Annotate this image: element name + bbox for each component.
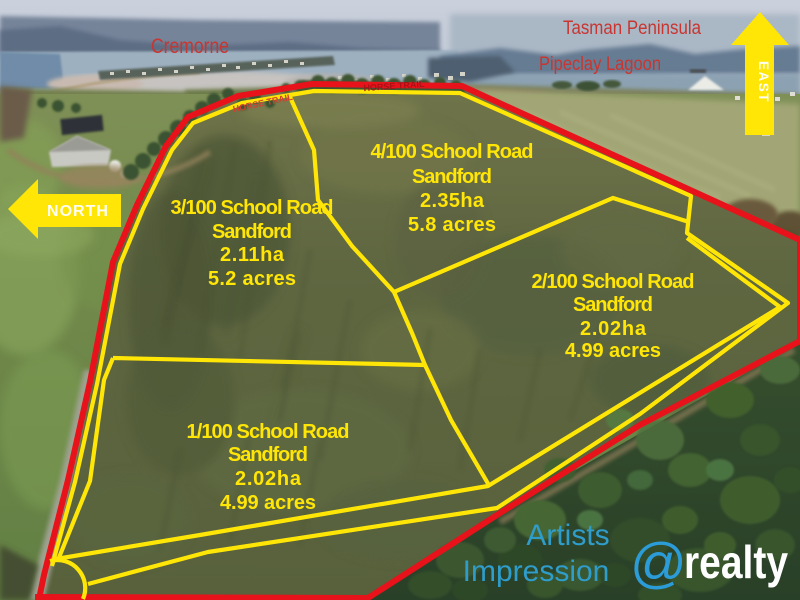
svg-text:4.99 acres: 4.99 acres [220,492,316,514]
svg-text:Sandford: Sandford [228,444,308,466]
svg-text:2.11ha: 2.11ha [220,244,285,266]
svg-text:3/100 School Road: 3/100 School Road [171,197,334,219]
svg-text:4/100 School Road: 4/100 School Road [371,141,534,163]
svg-text:Tasman Peninsula: Tasman Peninsula [563,18,701,39]
svg-text:5.2 acres: 5.2 acres [208,268,296,290]
svg-text:Pipeclay Lagoon: Pipeclay Lagoon [539,54,661,75]
svg-text:realty: realty [684,536,788,588]
svg-text:4.99 acres: 4.99 acres [565,340,661,362]
svg-text:1/100 School Road: 1/100 School Road [187,421,350,443]
svg-text:2.35ha: 2.35ha [420,190,485,212]
svg-text:Impression: Impression [463,555,610,588]
svg-text:2.02ha: 2.02ha [580,318,647,340]
svg-text:Sandford: Sandford [573,294,653,316]
svg-text:Sandford: Sandford [212,221,292,243]
svg-text:EAST: EAST [756,61,771,103]
svg-text:2.02ha: 2.02ha [235,468,302,490]
svg-text:2/100 School Road: 2/100 School Road [532,271,695,293]
svg-text:Sandford: Sandford [412,166,492,188]
svg-text:Cremorne: Cremorne [151,35,229,58]
svg-text:NORTH: NORTH [47,203,109,220]
svg-text:5.8 acres: 5.8 acres [408,214,496,236]
svg-text:Artists: Artists [526,519,609,552]
svg-text:@: @ [630,531,687,594]
